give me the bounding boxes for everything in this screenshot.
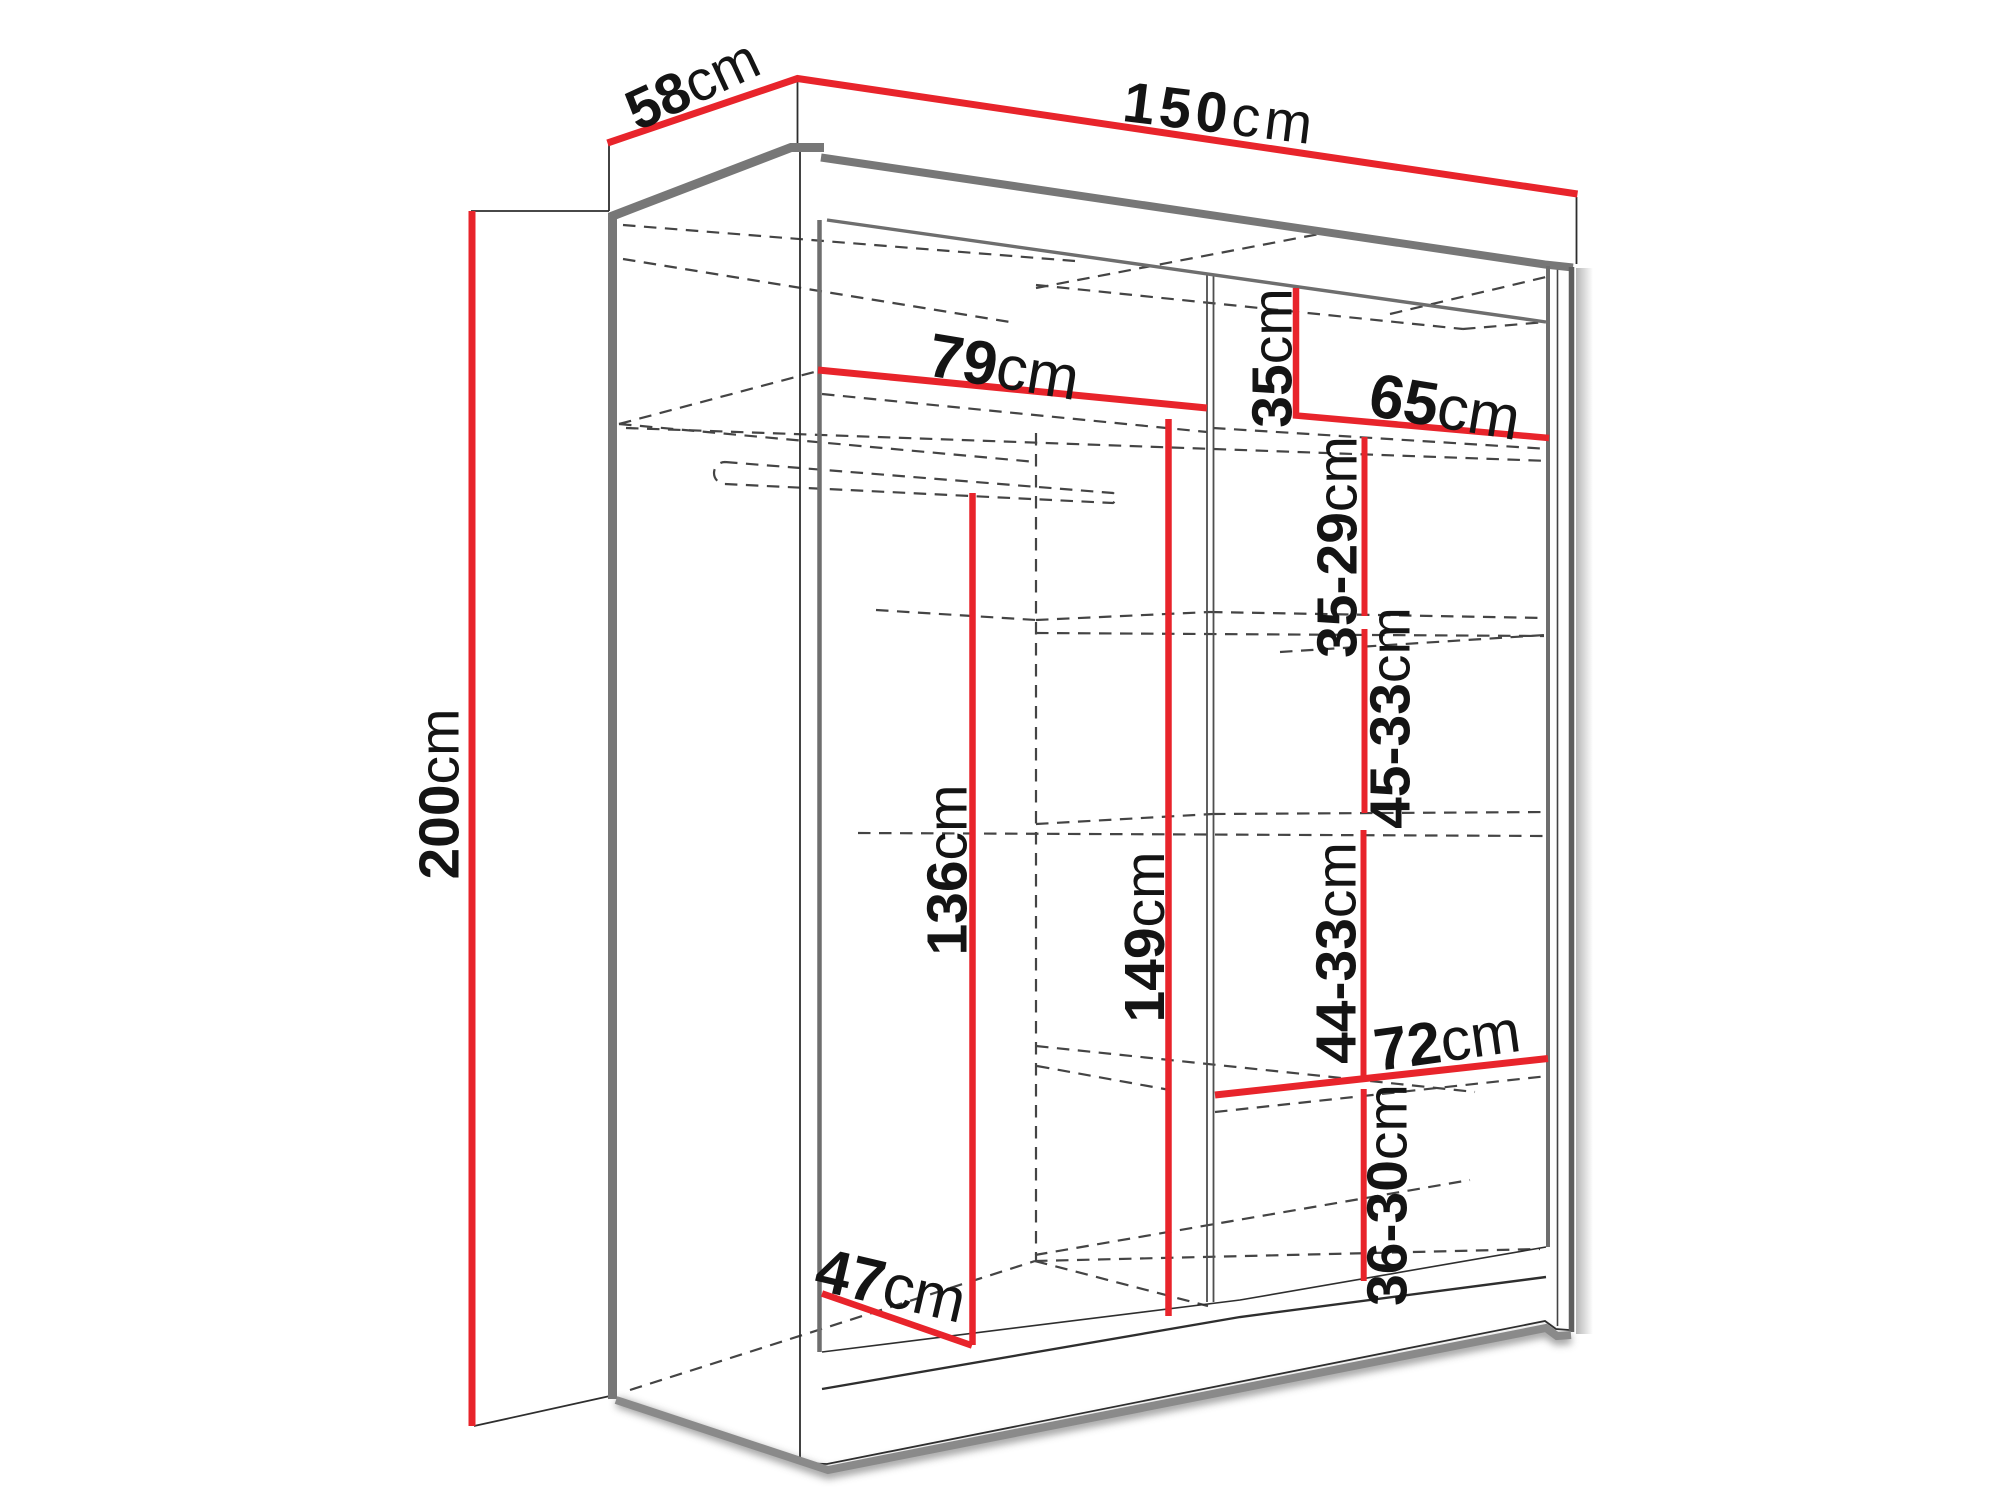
svg-text:200cm: 200cm xyxy=(408,708,472,879)
svg-text:35cm: 35cm xyxy=(1241,288,1305,427)
svg-text:149cm: 149cm xyxy=(1113,851,1177,1022)
svg-text:136cm: 136cm xyxy=(916,784,980,955)
svg-text:36-30cm: 36-30cm xyxy=(1356,1084,1420,1306)
svg-text:45-33cm: 45-33cm xyxy=(1359,607,1423,829)
svg-text:44-33cm: 44-33cm xyxy=(1305,842,1369,1064)
